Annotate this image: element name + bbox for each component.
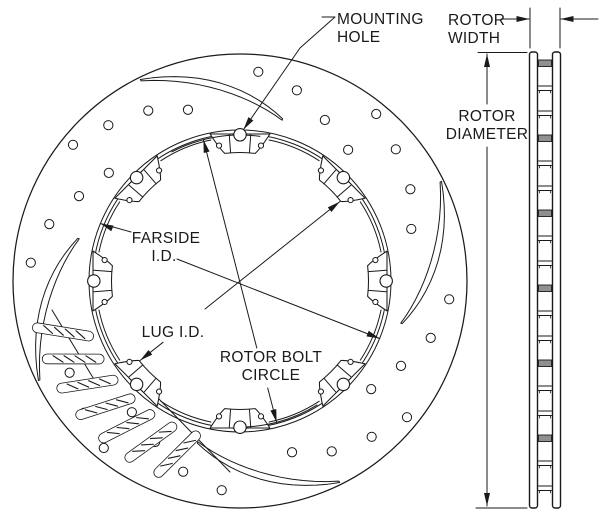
drilled-hole [144,106,153,115]
mounting-hole [234,129,246,141]
section-vane-block [539,60,552,67]
drilled-hole [217,486,226,495]
drilled-hole [179,467,188,476]
label-rotor-diameter: ROTOR [458,108,515,125]
drilled-hole [344,145,353,154]
label-lug-id: LUG I.D. [142,324,205,341]
lug-notch [373,257,378,262]
mounting-hole [130,171,142,183]
diagram-canvas: MOUNTINGHOLEROTORWIDTHROTORDIAMETERFARSI… [0,0,600,520]
section-vane-block [539,285,552,292]
drilled-hole [445,295,454,304]
label-farside-id: I.D. [151,248,176,265]
drilled-hole [320,115,329,124]
mounting-hole [234,421,246,433]
lug-notch [318,389,323,394]
drilled-hole [127,408,136,417]
drilled-hole [391,145,400,154]
lug-notch [348,359,353,364]
drilled-hole [68,140,77,149]
label-mounting-hole: HOLE [337,29,380,46]
mounting-hole [337,171,349,183]
rotor-plate [530,52,538,508]
label-rotor-width: WIDTH [448,30,500,47]
drilled-hole [74,192,83,201]
drilled-hole [45,220,54,229]
drilled-hole [104,168,113,177]
drilled-hole [396,361,405,370]
drilled-hole [407,224,416,233]
lug-notch [258,414,263,419]
mounting-hole [130,378,142,390]
lug-notch [373,299,378,304]
lug-notch [258,143,263,148]
rotor-width-dim [501,8,598,48]
lug-notch [216,414,221,419]
drilled-hole [402,413,411,422]
lug-notch [127,197,132,202]
drilled-hole [65,368,74,377]
lug-notch [102,257,107,262]
drilled-hole [372,109,381,118]
drilled-hole [287,448,296,457]
drilled-hole [26,258,35,267]
label-rotor-diameter: DIAMETER [446,126,529,143]
lug-notch [127,359,132,364]
vane-hatch [159,431,171,432]
drilled-hole [426,333,435,342]
drilled-hole [327,447,336,456]
lug-notch [156,168,161,173]
drilled-hole [406,185,415,194]
mounting-hole [380,275,392,287]
label-rotor-bolt-circle: CIRCLE [242,367,301,384]
cooling-vane-bar [47,356,99,363]
dimension-arrowhead [517,16,530,22]
rotor-cross-section-view [530,52,561,508]
mounting-hole [88,275,100,287]
section-vane-block [539,360,552,367]
mounting-hole [337,378,349,390]
drilled-hole [99,443,108,452]
section-vane-block [539,210,552,217]
label-rotor-width: ROTOR [448,12,505,29]
lug-notch [102,299,107,304]
lug-notch [348,197,353,202]
dimension-arrowhead [561,16,574,22]
lug-notch [156,389,161,394]
drilled-hole [104,121,113,130]
rotor-plate [553,52,561,508]
dimension-arrowhead [484,54,490,67]
label-mounting-hole: MOUNTING [337,11,424,28]
lug-notch [216,143,221,148]
lug-notch [318,168,323,173]
vane-hatch [142,444,154,445]
drilled-hole [292,86,301,95]
vane-hatch [133,451,145,452]
section-vane-block [539,135,552,142]
drilled-hole [367,432,376,441]
drilled-hole [183,105,192,114]
section-vane-block [539,435,552,442]
drilled-hole [367,385,376,394]
brake-rotor-technical-diagram: MOUNTINGHOLEROTORWIDTHROTORDIAMETERFARSI… [0,0,600,520]
label-rotor-bolt-circle: ROTOR BOLT [220,349,323,366]
label-farside-id: FARSIDE [132,230,200,247]
vane-hatch [150,438,162,439]
dimension-arrowhead [484,493,490,506]
drilled-hole [254,67,263,76]
